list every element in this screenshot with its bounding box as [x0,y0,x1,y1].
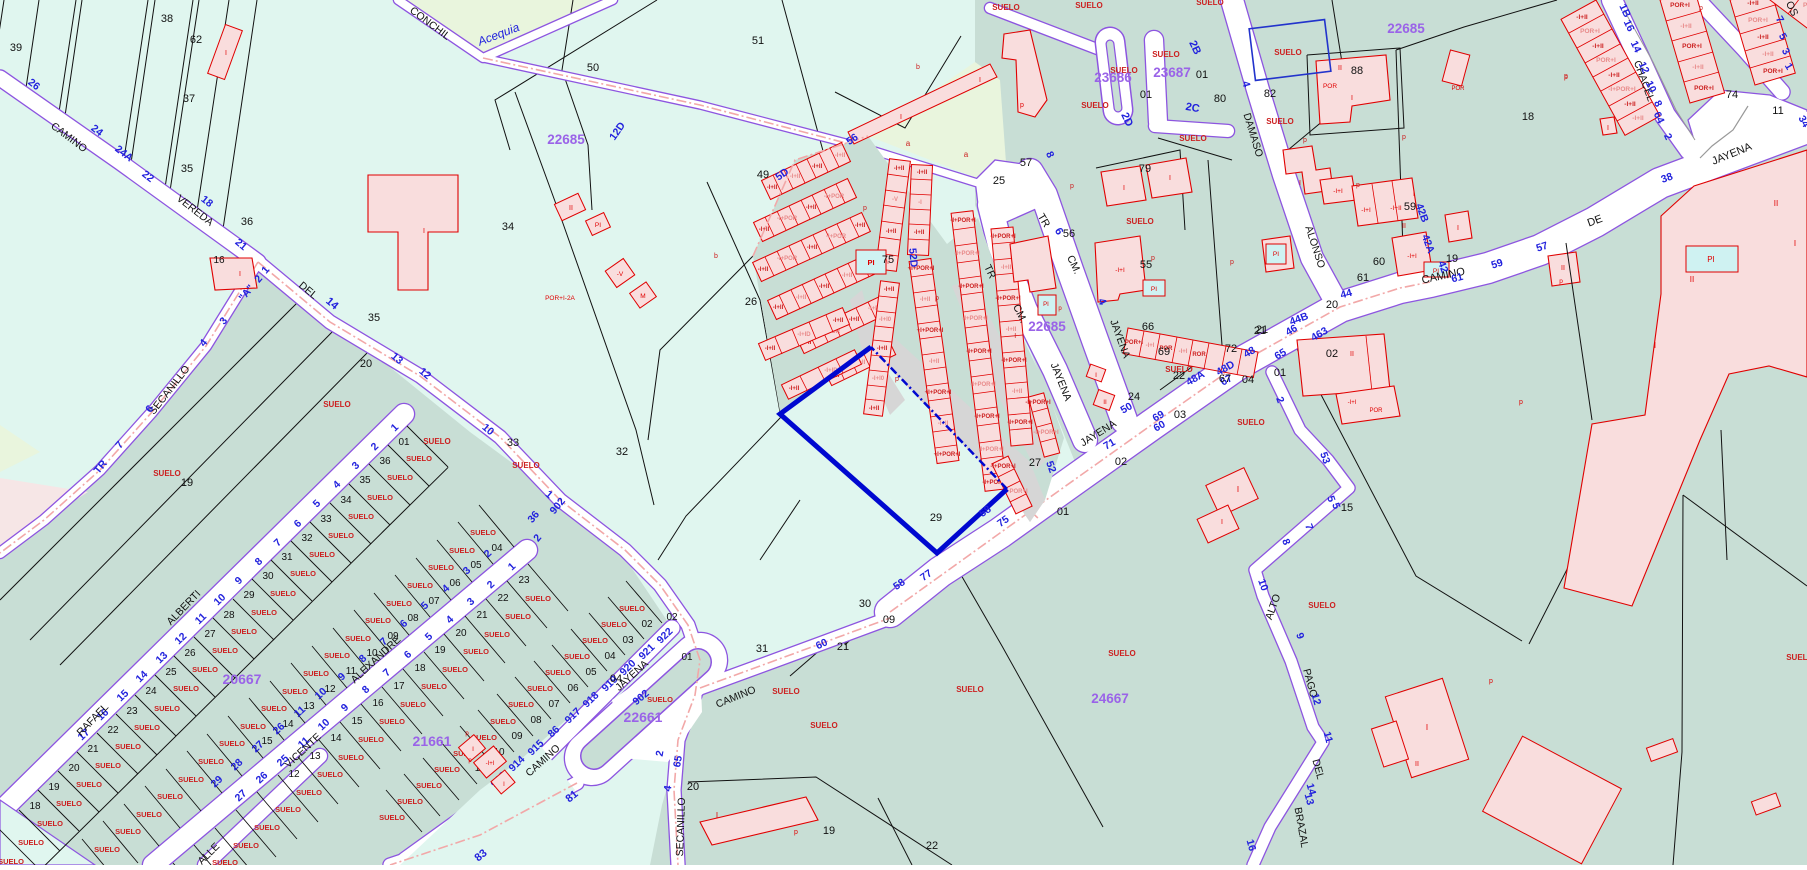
svg-text:SUELO: SUELO [406,454,432,463]
svg-text:SUELO: SUELO [386,599,412,608]
svg-text:SUELO: SUELO [136,810,162,819]
svg-text:SUELO: SUELO [1308,601,1336,610]
svg-text:SUELO: SUELO [416,781,442,790]
svg-text:-I+POR+I: -I+POR+I [966,349,992,355]
svg-text:SUELO: SUELO [956,685,984,694]
svg-text:I: I [239,271,241,278]
svg-text:20: 20 [687,781,699,793]
svg-text:SUELO: SUELO [449,546,475,555]
svg-text:PI: PI [595,222,601,229]
svg-text:+I+POR+I: +I+POR+I [917,328,944,334]
svg-text:SUELO: SUELO [251,608,277,617]
svg-text:SUELO: SUELO [212,646,238,655]
svg-text:-I+I: -I+I [1361,207,1371,214]
svg-text:I: I [423,228,425,235]
svg-text:18: 18 [1522,111,1534,123]
svg-text:72: 72 [1225,343,1237,355]
svg-text:POR: POR [1369,408,1383,414]
svg-text:SUELO: SUELO [1196,0,1224,7]
svg-text:-I+II: -I+II [917,170,928,176]
svg-text:SUELO: SUELO [582,636,608,645]
svg-text:-I+II: -I+II [886,229,897,235]
svg-text:POR+I: POR+I [1763,68,1783,75]
svg-text:SUELO: SUELO [564,652,590,661]
svg-text:p: p [794,829,798,836]
svg-text:SUELO: SUELO [134,723,160,732]
svg-text:-I+II: -I+II [806,205,817,211]
svg-text:67: 67 [1219,373,1231,385]
svg-text:POR+I: POR+I [1748,17,1768,24]
svg-text:-I+II: -I+II [1624,101,1636,108]
svg-text:16: 16 [213,255,225,266]
svg-text:33: 33 [507,437,519,449]
svg-text:M: M [640,293,645,300]
svg-text:26: 26 [745,296,757,308]
svg-text:POR+I: POR+I [1670,2,1690,9]
svg-text:35: 35 [359,475,371,486]
svg-text:02: 02 [1115,456,1127,468]
svg-text:-I+I0: -I+I0 [879,317,892,323]
svg-text:-I+II: -I+II [1680,23,1692,30]
svg-text:SUELO: SUELO [379,813,405,822]
svg-text:-I+ID: -I+ID [797,332,811,338]
svg-text:SUELO: SUELO [992,3,1020,12]
svg-text:SUELO: SUELO [212,858,238,865]
svg-text:21: 21 [87,744,99,755]
svg-text:p: p [935,295,939,302]
svg-text:-I+II: -I+II [894,166,905,172]
svg-text:06: 06 [449,578,461,589]
svg-text:-I+POR+I: -I+POR+I [1025,400,1051,406]
svg-text:SUELO: SUELO [296,788,322,797]
svg-text:-I+POR+I: -I+POR+I [954,251,980,257]
svg-text:23686: 23686 [1094,70,1132,85]
svg-text:62: 62 [190,34,202,46]
svg-text:-I+II: -I+II [796,295,807,301]
svg-text:p: p [1356,182,1360,189]
svg-text:32: 32 [616,446,628,458]
svg-text:08: 08 [530,715,542,726]
svg-text:-I+II: -I+II [1762,51,1774,58]
svg-text:SUELO: SUELO [1179,134,1207,143]
svg-text:32: 32 [301,533,313,544]
svg-text:p: p [1020,102,1024,109]
svg-text:SUELO: SUELO [1165,365,1193,374]
svg-text:-I+POR+I: -I+POR+I [995,296,1021,302]
svg-text:-I+POR: -I+POR [777,256,798,262]
svg-text:-I+POR: -I+POR [777,216,798,222]
svg-text:23: 23 [126,706,138,717]
svg-text:II: II [1690,275,1694,284]
svg-text:+I+POR+I: +I+POR+I [934,452,961,458]
svg-text:39: 39 [10,42,22,54]
svg-text:34: 34 [340,495,352,506]
svg-text:SUELO: SUELO [178,775,204,784]
svg-text:SUELO: SUELO [173,684,199,693]
svg-text:I: I [1123,185,1125,192]
svg-text:SUELO: SUELO [397,797,423,806]
svg-text:SUELO: SUELO [323,400,351,409]
svg-text:18: 18 [414,663,426,674]
svg-text:-I+I0: -I+I0 [872,376,885,382]
svg-text:SUELO: SUELO [324,651,350,660]
svg-text:-I: -I [918,200,922,206]
svg-text:PI: PI [867,258,874,267]
svg-text:36: 36 [379,456,391,467]
svg-text:24: 24 [145,686,157,697]
svg-text:SECANILLO: SECANILLO [674,797,688,856]
svg-text:SUELO: SUELO [37,819,63,828]
svg-text:SUELO: SUELO [154,704,180,713]
svg-text:27: 27 [1029,457,1041,469]
svg-text:-I+I: -I+I [1115,267,1125,274]
svg-text:SUELO: SUELO [1274,48,1302,57]
svg-text:2C: 2C [1185,101,1201,115]
svg-text:II: II [1561,265,1565,272]
svg-text:-I+II: -I+II [812,164,823,170]
svg-text:-I+II: -I+II [1757,34,1769,41]
svg-text:03: 03 [622,635,634,646]
svg-text:01: 01 [1140,89,1152,101]
svg-text:21: 21 [476,610,488,621]
svg-text:SUELO: SUELO [545,668,571,677]
svg-text:SUELO: SUELO [512,461,540,470]
svg-text:35: 35 [368,312,380,324]
svg-text:04: 04 [604,651,616,662]
svg-text:SUELO: SUELO [338,753,364,762]
svg-text:23687: 23687 [1153,65,1191,80]
svg-text:-I+POR+I: -I+POR+I [978,447,1004,453]
svg-text:I: I [1237,485,1239,494]
svg-text:50: 50 [587,62,599,74]
svg-text:27: 27 [204,629,216,640]
svg-text:II: II [1415,761,1419,768]
svg-text:-I+II: -I+II [1390,205,1402,212]
svg-text:-I+II: -I+II [1012,389,1023,395]
svg-text:25: 25 [993,175,1005,187]
svg-text:-I+POR+I: -I+POR+I [1001,358,1027,364]
svg-text:SUELO: SUELO [231,627,257,636]
svg-text:19: 19 [48,782,60,793]
svg-text:19: 19 [181,477,193,489]
svg-text:I: I [1299,180,1301,187]
svg-text:PI: PI [1151,286,1157,293]
svg-text:-I+II: -I+II [855,223,866,229]
svg-text:-I+POR: -I+POR [824,194,845,200]
svg-text:-I+POR+I: -I+POR+I [974,414,1000,420]
svg-text:p: p [863,205,867,212]
svg-text:POR+I: POR+I [1694,85,1714,92]
svg-text:SUELO: SUELO [1266,117,1294,126]
svg-text:SUELO: SUELO [153,469,181,478]
svg-text:-I+II: -I+II [929,359,940,365]
svg-text:03: 03 [1174,409,1186,421]
svg-text:a: a [964,150,969,159]
svg-text:-I+POR+I: -I+POR+I [958,284,984,290]
svg-text:I: I [1169,175,1171,182]
svg-text:30: 30 [859,598,871,610]
svg-text:88: 88 [1351,65,1363,77]
svg-text:SUELO: SUELO [619,604,645,613]
svg-text:25: 25 [165,667,177,678]
svg-text:59: 59 [1404,201,1416,213]
svg-text:ROR: ROR [1192,352,1206,358]
svg-text:PI: PI [1273,251,1279,258]
svg-text:05: 05 [585,667,597,678]
svg-text:I: I [225,50,227,57]
svg-text:POR+I: POR+I [1580,28,1600,35]
svg-text:SUELO: SUELO [1152,50,1180,59]
svg-text:SUELO: SUELO [400,700,426,709]
svg-text:02: 02 [666,612,678,623]
svg-text:-I+I: -I+I [1348,400,1357,406]
svg-text:II: II [1402,223,1406,230]
svg-text:69: 69 [1158,346,1170,358]
svg-text:SUELO: SUELO [601,620,627,629]
svg-text:-I+II: -I+II [773,305,784,311]
svg-text:82: 82 [1264,88,1276,100]
svg-text:14: 14 [330,733,342,744]
svg-text:SUELO: SUELO [192,665,218,674]
svg-text:p: p [1402,134,1406,141]
svg-text:SUELO: SUELO [254,823,280,832]
svg-text:SUELO: SUELO [157,792,183,801]
svg-text:-I+II: -I+II [1608,72,1620,79]
svg-text:POR+I: POR+I [1682,43,1702,50]
svg-text:II: II [1338,65,1342,72]
svg-text:-V: -V [892,197,898,203]
svg-text:p: p [1303,137,1307,144]
svg-text:09: 09 [511,731,523,742]
svg-text:SUELO: SUELO [379,717,405,726]
svg-text:I: I [1426,723,1428,732]
svg-text:-I+POR+I: -I+POR+I [1608,86,1636,93]
svg-text:22: 22 [926,840,938,852]
svg-text:POR+I-2A: POR+I-2A [545,295,575,302]
svg-text:SUELO: SUELO [470,528,496,537]
svg-text:SUELO: SUELO [1108,649,1136,658]
svg-text:I: I [1457,225,1459,232]
svg-text:01: 01 [398,437,410,448]
svg-text:-I+POR: -I+POR [826,234,847,240]
svg-text:SUELO: SUELO [198,757,224,766]
svg-text:21: 21 [837,641,849,653]
svg-text:I: I [716,811,718,820]
svg-text:-I+II: -I+II [877,346,888,352]
svg-text:49: 49 [757,169,769,181]
svg-text:22685: 22685 [1028,319,1066,334]
svg-text:SUELO: SUELO [423,437,451,446]
svg-text:02: 02 [641,619,653,630]
svg-text:-I+II: -I+II [849,317,860,323]
svg-text:31: 31 [756,643,768,655]
svg-text:21661: 21661 [413,733,452,749]
svg-text:36: 36 [241,216,253,228]
svg-text:SUELO: SUELO [0,857,24,865]
svg-text:II: II [1350,351,1354,358]
svg-text:19: 19 [823,825,835,837]
svg-text:SUELO: SUELO [421,682,447,691]
svg-text:04: 04 [610,673,622,685]
svg-text:b: b [714,253,718,260]
svg-text:SUELO: SUELO [94,845,120,854]
svg-text:-I+II: -I+II [789,386,800,392]
svg-text:-I+POR+I: -I+POR+I [950,218,976,224]
svg-text:SUELO: SUELO [484,630,510,639]
svg-text:29: 29 [930,512,942,524]
svg-text:13: 13 [309,751,321,762]
svg-text:30: 30 [262,571,274,582]
svg-text:29: 29 [243,590,255,601]
svg-text:-I+I: -I+I [1333,188,1343,195]
svg-text:34: 34 [502,221,514,233]
svg-text:65: 65 [671,755,685,769]
svg-text:-I+POR+I: -I+POR+I [1033,430,1059,436]
svg-text:-I+II: -I+II [869,406,880,412]
svg-text:p: p [1489,678,1493,685]
svg-text:SUELO: SUELO [527,684,553,693]
svg-text:-I+II: -I+II [1592,43,1604,50]
svg-text:SUELO: SUELO [309,550,335,559]
svg-text:p: p [1519,399,1523,406]
svg-text:79: 79 [1139,163,1151,175]
svg-text:POR+I: POR+I [1596,57,1616,64]
svg-text:p: p [1564,73,1568,80]
svg-text:-I+II: -I+II [1692,64,1704,71]
svg-text:SUELO: SUELO [1075,1,1103,10]
svg-text:60: 60 [1373,256,1385,268]
svg-text:80: 80 [1214,93,1226,105]
svg-text:SUELO: SUELO [367,493,393,502]
svg-text:22661: 22661 [624,709,663,725]
svg-text:-I+POR+I: -I+POR+I [990,464,1016,470]
svg-text:-I+II: -I+II [1747,0,1759,7]
svg-text:21: 21 [1256,324,1268,336]
svg-text:SUELO: SUELO [407,581,433,590]
svg-text:p: p [1070,183,1074,190]
svg-text:22: 22 [107,725,119,736]
svg-text:POR: POR [1323,83,1337,90]
svg-text:74: 74 [1726,89,1738,101]
svg-text:I: I [1654,341,1656,350]
svg-text:SUELO: SUELO [525,594,551,603]
svg-text:-I+II: -I+II [790,174,801,180]
svg-text:SUELO: SUELO [1126,217,1154,226]
svg-text:-I+POR+I: -I+POR+I [962,316,988,322]
svg-text:SUELO: SUELO [233,841,259,850]
svg-text:b: b [916,64,920,71]
svg-text:SUELO: SUELO [317,770,343,779]
svg-text:p: p [1559,278,1563,285]
svg-text:-I+POR+I: -I+POR+I [1007,420,1033,426]
svg-text:20: 20 [68,763,80,774]
svg-text:04: 04 [491,543,503,554]
svg-text:-I+II: -I+II [819,284,830,290]
svg-text:SUELO: SUELO [76,780,102,789]
svg-text:-I+II: -I+II [767,185,778,191]
svg-text:SUELO: SUELO [270,589,296,598]
svg-text:SUELO: SUELO [490,717,516,726]
svg-text:-I+II: -I+II [920,297,931,303]
svg-text:-V: -V [617,271,624,278]
svg-text:II: II [1774,199,1778,208]
svg-text:SUELO: SUELO [115,742,141,751]
svg-text:p: p [1699,5,1703,12]
svg-text:-I+I: -I+I [1146,343,1155,349]
svg-text:20: 20 [455,628,467,639]
svg-text:SUELO: SUELO [387,473,413,482]
svg-text:52D: 52D [906,248,920,269]
svg-text:06: 06 [567,683,579,694]
svg-text:15: 15 [351,716,363,727]
svg-text:SUELO: SUELO [442,665,468,674]
svg-text:-I: -I [1012,333,1016,340]
svg-text:+I+POR+I: +I+POR+I [925,390,952,396]
svg-text:-I+II: -I+II [758,267,769,273]
svg-text:I: I [1794,239,1796,248]
svg-text:18: 18 [29,801,41,812]
svg-text:p: p [895,376,899,383]
svg-text:01: 01 [1274,367,1286,379]
svg-text:p: p [1151,255,1155,262]
svg-text:SUELO: SUELO [508,700,534,709]
svg-text:SUELO: SUELO [348,512,374,521]
svg-text:I: I [979,77,981,84]
svg-text:20: 20 [360,358,372,370]
svg-text:SUELO: SUELO [1786,653,1807,662]
svg-text:SUELO: SUELO [772,687,800,696]
svg-text:38: 38 [161,13,173,25]
svg-text:SUELO: SUELO [290,569,316,578]
svg-text:SUELO: SUELO [18,838,44,847]
svg-text:SUELO: SUELO [1237,418,1265,427]
svg-text:SUELO: SUELO [275,805,301,814]
svg-text:SUELO: SUELO [282,687,308,696]
svg-text:-I+POR+I: -I+POR+I [990,234,1016,240]
svg-text:a: a [906,139,911,148]
svg-text:-I+II: -I+II [765,346,776,352]
svg-text:31: 31 [281,552,293,563]
svg-text:07: 07 [428,596,440,607]
svg-text:-I+II: -I+II [807,245,818,251]
svg-text:p: p [1230,259,1234,266]
svg-text:22: 22 [497,593,509,604]
svg-text:-I+I: -I+I [1407,253,1417,260]
svg-text:I: I [1095,372,1097,379]
svg-text:16: 16 [372,698,384,709]
svg-text:51: 51 [752,35,764,47]
svg-text:01: 01 [1057,506,1069,518]
svg-text:17: 17 [393,681,405,692]
svg-text:SUELO: SUELO [505,612,531,621]
svg-text:-I+I: -I+I [486,761,495,767]
svg-text:-I+II: -I+II [1576,14,1588,21]
svg-text:POR: POR [1803,2,1807,9]
svg-text:SUELO: SUELO [240,722,266,731]
svg-text:08: 08 [407,613,419,624]
svg-text:SUELO: SUELO [328,531,354,540]
svg-text:15: 15 [1341,502,1353,514]
svg-text:01: 01 [681,652,693,663]
svg-text:24: 24 [1128,391,1140,403]
svg-text:01: 01 [1196,69,1208,81]
svg-text:SUELO: SUELO [115,827,141,836]
svg-text:SUELO: SUELO [358,735,384,744]
svg-text:75: 75 [882,254,894,266]
svg-text:09: 09 [883,614,895,626]
svg-text:SUELO: SUELO [219,739,245,748]
svg-text:-I+II: -I+II [842,273,853,279]
